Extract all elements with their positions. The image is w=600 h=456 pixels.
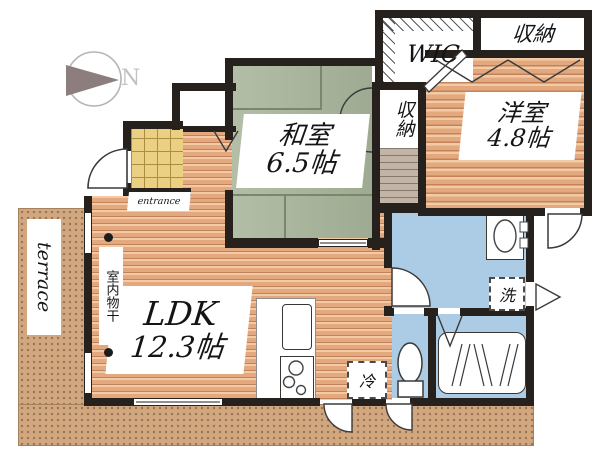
tatami-line bbox=[232, 108, 322, 110]
wall bbox=[123, 121, 131, 151]
yoshitsu-label: 洋室 4.8帖 bbox=[458, 92, 581, 160]
wall bbox=[223, 398, 320, 406]
wall bbox=[584, 10, 592, 216]
wall bbox=[526, 208, 534, 282]
storage-middle-label: 収納 bbox=[386, 90, 422, 148]
fridge-space: 冷 bbox=[347, 361, 387, 399]
wall bbox=[375, 10, 383, 90]
ldk-label: LDK 12.3帖 bbox=[105, 286, 252, 374]
wall bbox=[580, 208, 592, 216]
window bbox=[84, 352, 92, 394]
wall bbox=[372, 82, 380, 250]
drying-pole-mount bbox=[104, 233, 113, 242]
side-door bbox=[536, 284, 560, 310]
washbasin bbox=[486, 212, 524, 260]
wall bbox=[384, 308, 394, 316]
indoor-drying-label: 室内物干 bbox=[99, 247, 123, 345]
bathtub bbox=[438, 332, 526, 394]
drying-pole-mount bbox=[104, 348, 113, 357]
wall bbox=[352, 398, 386, 406]
wall bbox=[375, 82, 426, 90]
tatami-line bbox=[284, 196, 286, 238]
wall bbox=[183, 126, 236, 132]
wic-hanger-hatch bbox=[383, 18, 473, 31]
kitchen-sink bbox=[282, 304, 312, 350]
washitsu-label: 和室 6.5帖 bbox=[236, 114, 370, 188]
terrace-bottom bbox=[18, 404, 534, 446]
compass-arrow-icon bbox=[66, 65, 119, 96]
compass-circle bbox=[67, 52, 121, 106]
stove bbox=[280, 356, 314, 400]
window bbox=[84, 212, 92, 254]
washer-space: 洗 bbox=[489, 277, 525, 311]
wall bbox=[84, 398, 133, 406]
entrance-tile-floor bbox=[131, 129, 183, 191]
wall bbox=[384, 213, 392, 268]
yoshitsu-door-arc bbox=[548, 214, 582, 248]
entry-door-arc bbox=[88, 149, 127, 188]
tatami-line bbox=[320, 66, 322, 110]
wall bbox=[123, 121, 183, 129]
toilet-floor bbox=[392, 314, 428, 398]
wall bbox=[225, 58, 383, 66]
wall bbox=[428, 314, 436, 400]
tatami-line bbox=[232, 194, 372, 196]
terrace-label: terrace bbox=[27, 219, 61, 335]
wic-label: WIC bbox=[394, 36, 472, 74]
wall bbox=[84, 252, 92, 354]
wall bbox=[526, 306, 534, 406]
wall bbox=[225, 238, 318, 248]
wall bbox=[172, 83, 236, 91]
sliding-window bbox=[133, 398, 223, 406]
storage-top-right-label: 収納 bbox=[486, 20, 581, 48]
compass-north-label: N bbox=[121, 66, 140, 91]
sliding-door-washitsu bbox=[318, 239, 368, 247]
entrance-label: entrance bbox=[127, 192, 191, 211]
floor-plan: N 和室 6.5帖 洋室 4.8帖 LDK 12.3帖 WIC 収納 収納 洗 … bbox=[0, 0, 600, 456]
wall bbox=[375, 10, 592, 18]
